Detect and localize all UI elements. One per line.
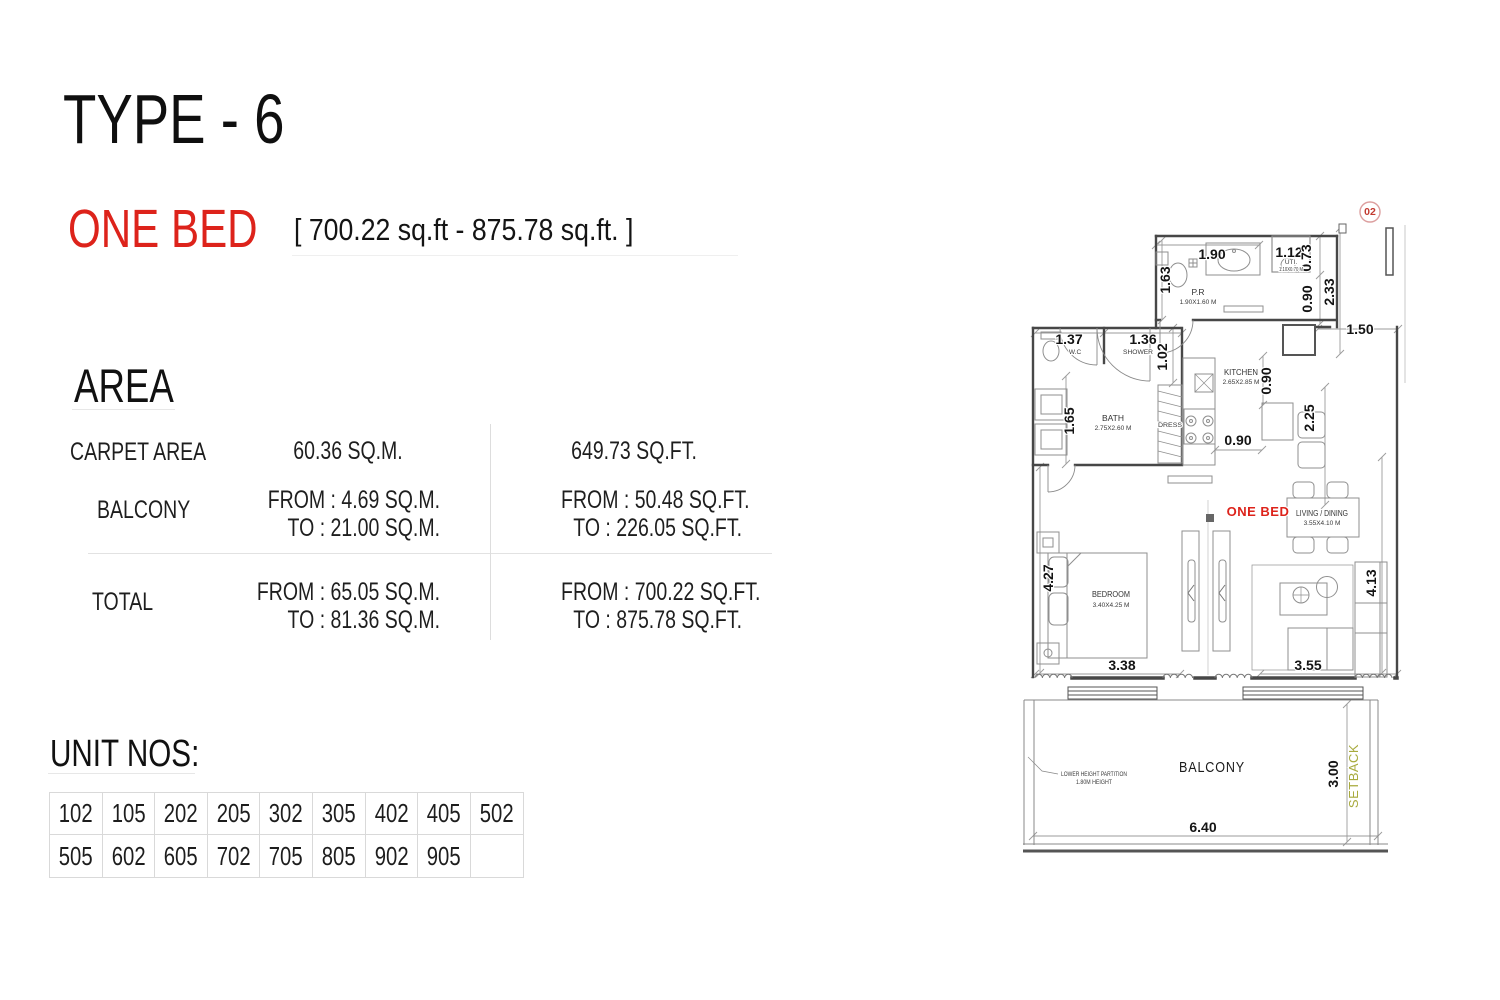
- carpet-area-label: CARPET AREA: [70, 438, 206, 467]
- dim-0-90-entry: 0.90: [1299, 285, 1315, 312]
- pillow-2: [1049, 593, 1068, 625]
- balcony-sqft-from: FROM : 50.48 SQ.FT.: [561, 487, 742, 515]
- unit-nos-table: 102 105 202 205 302 305 402 405 502 505 …: [49, 792, 524, 878]
- floorplan-drawing: 02 1.90 1.63 1.12 0.73 0.90 2.33 1.50 1.…: [1010, 195, 1500, 885]
- carpet-area-sqft: 649.73 SQ.FT.: [548, 438, 720, 466]
- dim-0-90-corridor: 0.90: [1224, 432, 1251, 448]
- kitchen-island: [1262, 403, 1293, 440]
- room-balcony: BALCONY: [1179, 759, 1245, 776]
- sliding-panel-1: [1182, 531, 1199, 651]
- unit-cell: 202: [155, 793, 208, 835]
- total-sqm-to: TO : 81.36 SQ.M.: [253, 607, 440, 635]
- partition-note-1: LOWER HEIGHT PARTITION: [1061, 772, 1127, 778]
- dim-2-25: 2.25: [1301, 404, 1317, 431]
- floorplan-sheet: TYPE - 6 ONE BED [ 700.22 sq.ft - 875.78…: [0, 0, 1500, 1000]
- kitchen-stove: [1184, 409, 1215, 444]
- unit-cell: 402: [366, 793, 419, 835]
- unit-cell: 602: [103, 835, 156, 877]
- unit-cell: 405: [418, 793, 471, 835]
- room-pr: P.R: [1191, 287, 1204, 297]
- unit-cell: [471, 835, 524, 877]
- unit-cell: 702: [208, 835, 261, 877]
- dim-4-27: 4.27: [1040, 564, 1056, 591]
- sliding-door-1: [1068, 687, 1157, 699]
- balcony-label: BALCONY: [97, 496, 190, 525]
- ottoman-2: [1327, 628, 1353, 670]
- entry-stub-wall: [1386, 228, 1393, 275]
- dim-0-90-kitchen: 0.90: [1258, 367, 1274, 394]
- dining-chair: [1327, 482, 1348, 498]
- total-sqm-from: FROM : 65.05 SQ.M.: [253, 579, 440, 607]
- unit-badge-number: 02: [1364, 206, 1376, 218]
- unit-cell: 605: [155, 835, 208, 877]
- room-bath-size: 2.75X2.60 M: [1095, 425, 1132, 432]
- room-bath: BATH: [1102, 413, 1124, 423]
- kitchen-tall-unit: [1283, 325, 1315, 355]
- partition-leader: [1028, 757, 1058, 774]
- pr-shelf: [1224, 306, 1263, 312]
- setback-label: SETBACK: [1346, 744, 1361, 808]
- dim-1-36: 1.36: [1129, 331, 1156, 347]
- room-uti: UTI.: [1285, 259, 1297, 266]
- sliding-door-2: [1243, 687, 1363, 699]
- bath-door: [1048, 465, 1075, 492]
- room-living-size: 3.55X4.10 M: [1304, 520, 1341, 527]
- room-dress: DRESS: [1158, 422, 1183, 429]
- total-sqm: FROM : 65.05 SQ.M. TO : 81.36 SQ.M.: [253, 579, 440, 634]
- dining-chair: [1293, 537, 1314, 553]
- unit-cell: 205: [208, 793, 261, 835]
- total-sqft: FROM : 700.22 SQ.FT. TO : 875.78 SQ.FT.: [561, 579, 742, 634]
- room-bedroom-size: 3.40X4.25 M: [1093, 602, 1130, 609]
- total-sqft-to: TO : 875.78 SQ.FT.: [561, 607, 742, 635]
- area-row-divider: [88, 553, 772, 554]
- room-kitchen-size: 2.65X2.85 M: [1223, 379, 1260, 386]
- dim-1-37: 1.37: [1055, 331, 1082, 347]
- total-sqft-from: FROM : 700.22 SQ.FT.: [561, 579, 742, 607]
- room-pr-size: 1.90X1.60 M: [1180, 299, 1217, 306]
- balcony-sqft-to: TO : 226.05 SQ.FT.: [561, 515, 742, 543]
- area-heading: AREA: [74, 362, 174, 409]
- balcony-sqft: FROM : 50.48 SQ.FT. TO : 226.05 SQ.FT.: [561, 487, 742, 542]
- page-title: TYPE - 6: [63, 84, 284, 154]
- subtitle-one-bed: ONE BED: [68, 202, 258, 256]
- unit-nos-underline: [48, 773, 195, 774]
- dining-chair: [1293, 482, 1314, 498]
- dim-3-00: 3.00: [1325, 760, 1341, 787]
- unit-cell: 805: [313, 835, 366, 877]
- unit-cell: 902: [366, 835, 419, 877]
- unit-cell: 102: [50, 793, 103, 835]
- plan-one-bed-label: ONE BED: [1227, 504, 1290, 519]
- living-rug: [1252, 565, 1353, 670]
- room-living: LIVING / DINING: [1296, 508, 1348, 518]
- total-label: TOTAL: [92, 588, 153, 617]
- entry-frame-block: [1339, 224, 1346, 233]
- dining-chair: [1327, 537, 1348, 553]
- dim-2-33: 2.33: [1321, 278, 1337, 305]
- unit-cell: 105: [103, 793, 156, 835]
- subtitle-area-range: [ 700.22 sq.ft - 875.78 sq.ft. ]: [294, 213, 633, 247]
- dim-3-55: 3.55: [1294, 657, 1321, 673]
- dim-3-38: 3.38: [1108, 657, 1135, 673]
- unit-nos-heading: UNIT NOS:: [50, 735, 199, 773]
- balcony-sqm: FROM : 4.69 SQ.M. TO : 21.00 SQ.M.: [253, 487, 440, 542]
- partition-post: [1206, 514, 1214, 522]
- partition-note-2: 1.80M HEIGHT: [1076, 780, 1112, 786]
- kitchen-stool-2: [1298, 442, 1325, 468]
- carpet-area-sqm: 60.36 SQ.M.: [262, 438, 434, 466]
- room-uti-size: 1.10X0.70 M: [1279, 267, 1303, 273]
- balcony-sqm-from: FROM : 4.69 SQ.M.: [253, 487, 440, 515]
- area-underline: [72, 409, 175, 410]
- room-kitchen: KITCHEN: [1224, 367, 1258, 377]
- area-col-divider: [490, 424, 491, 640]
- unit-cell: 502: [471, 793, 524, 835]
- sliding-panel-2: [1213, 531, 1230, 651]
- unit-cell: 905: [418, 835, 471, 877]
- unit-cell: 705: [260, 835, 313, 877]
- room-wc: W.C: [1069, 349, 1082, 356]
- room-shower: SHOWER: [1123, 349, 1153, 356]
- tv-console: [1168, 476, 1212, 483]
- dim-1-63: 1.63: [1157, 266, 1173, 293]
- dim-1-02: 1.02: [1154, 343, 1170, 370]
- unit-cell: 505: [50, 835, 103, 877]
- dim-4-13: 4.13: [1363, 569, 1379, 596]
- unit-cell: 302: [260, 793, 313, 835]
- balcony-sqm-to: TO : 21.00 SQ.M.: [253, 515, 440, 543]
- dim-6-40: 6.40: [1189, 819, 1216, 835]
- dim-1-90: 1.90: [1198, 246, 1225, 262]
- dim-1-50: 1.50: [1346, 321, 1373, 337]
- subtitle-underline: [292, 255, 738, 256]
- unit-cell: 305: [313, 793, 366, 835]
- room-bedroom: BEDROOM: [1092, 589, 1130, 599]
- dim-1-65: 1.65: [1061, 407, 1077, 434]
